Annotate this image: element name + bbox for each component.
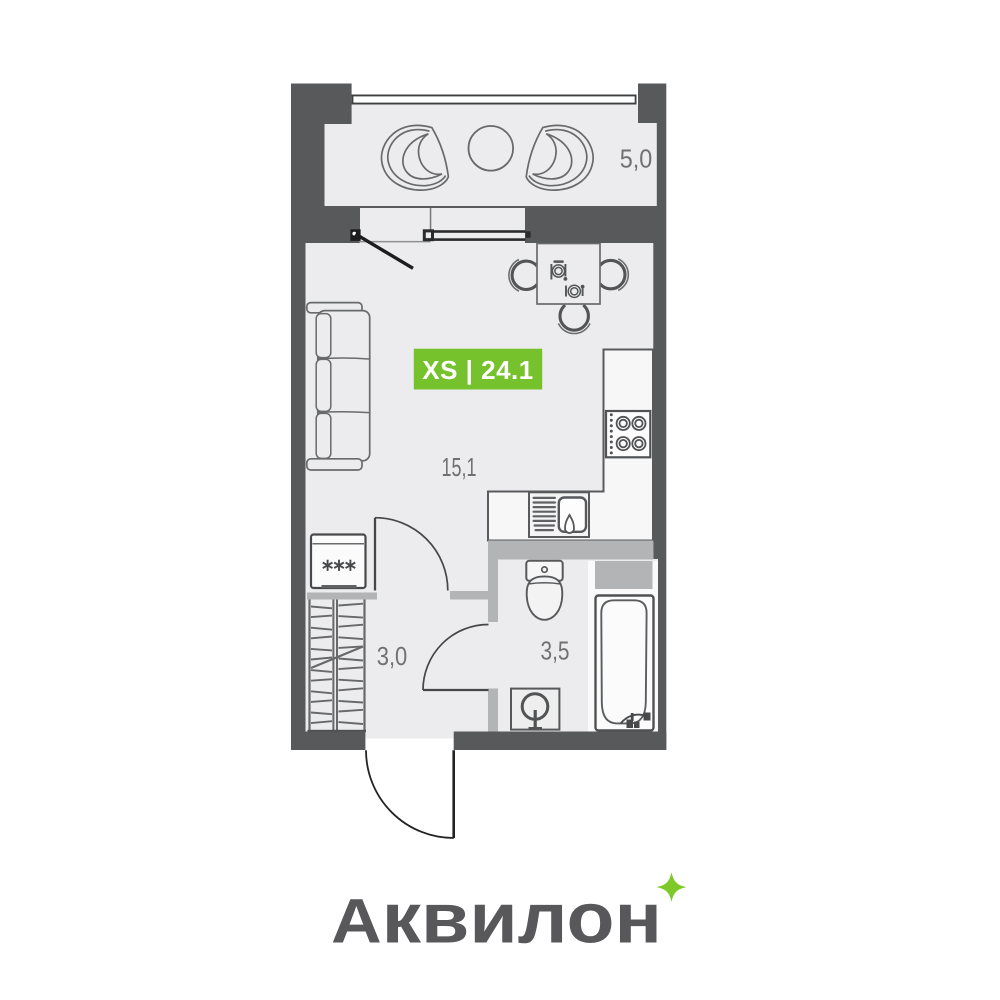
svg-text:XS | 24.1: XS | 24.1 [422, 355, 534, 385]
svg-text:3,0: 3,0 [377, 641, 408, 671]
svg-text:5,0: 5,0 [620, 144, 653, 174]
svg-text:Аквилон: Аквилон [331, 880, 662, 959]
svg-text:3,5: 3,5 [541, 636, 570, 666]
svg-text:15,1: 15,1 [442, 452, 477, 482]
